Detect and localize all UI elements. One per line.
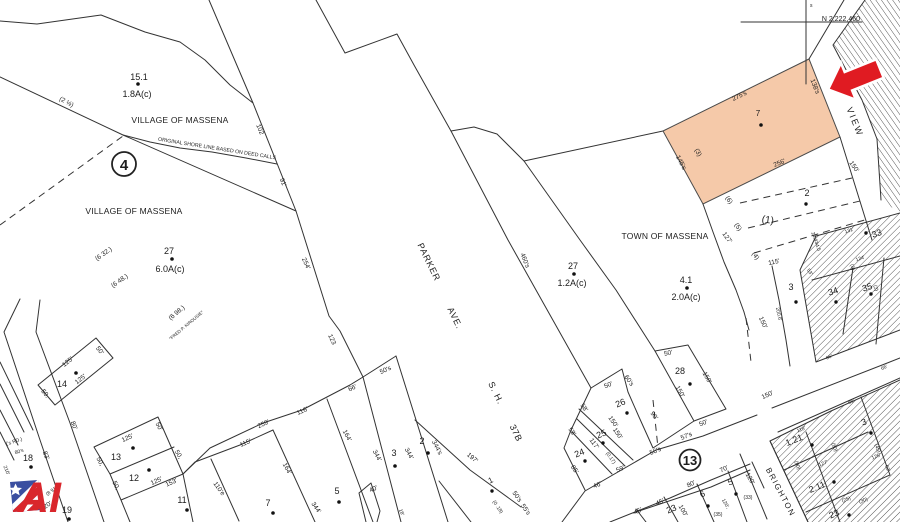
svg-text:(1): (1) <box>761 214 775 227</box>
svg-text:28: 28 <box>675 366 685 376</box>
svg-text:11: 11 <box>177 495 186 505</box>
svg-text:13: 13 <box>111 452 121 462</box>
svg-text:27: 27 <box>164 246 174 256</box>
svg-text:13: 13 <box>683 453 697 468</box>
svg-text:2.0A(c): 2.0A(c) <box>671 292 700 302</box>
svg-text:TOWN OF MASSENA: TOWN OF MASSENA <box>622 231 709 241</box>
svg-text:N 2,222,460: N 2,222,460 <box>822 16 860 23</box>
svg-text:5: 5 <box>334 486 339 496</box>
svg-text:1.8A(c): 1.8A(c) <box>122 89 151 99</box>
svg-text:27: 27 <box>568 261 578 271</box>
svg-text:(33): (33) <box>744 495 753 501</box>
svg-text:3: 3 <box>391 448 396 458</box>
svg-text:7: 7 <box>265 498 270 508</box>
svg-text:VILLAGE OF MASSENA: VILLAGE OF MASSENA <box>131 115 228 125</box>
svg-text:2: 2 <box>419 436 424 446</box>
svg-text:4: 4 <box>120 157 129 174</box>
svg-text:6.0A(c): 6.0A(c) <box>155 264 184 274</box>
svg-text:1.2A(c): 1.2A(c) <box>557 278 586 288</box>
svg-text:AI: AI <box>17 474 62 522</box>
svg-text:VILLAGE OF MASSENA: VILLAGE OF MASSENA <box>85 206 182 216</box>
svg-text:(35): (35) <box>714 512 723 518</box>
svg-text:14: 14 <box>57 379 67 389</box>
svg-text:19: 19 <box>62 505 72 515</box>
svg-text:3: 3 <box>788 282 793 292</box>
svg-text:2: 2 <box>804 188 809 198</box>
svg-text:7: 7 <box>756 109 761 118</box>
svg-text:4.1: 4.1 <box>680 275 693 285</box>
svg-text:15.1: 15.1 <box>130 72 148 82</box>
svg-text:18: 18 <box>23 453 33 463</box>
svg-text:12: 12 <box>129 473 139 483</box>
